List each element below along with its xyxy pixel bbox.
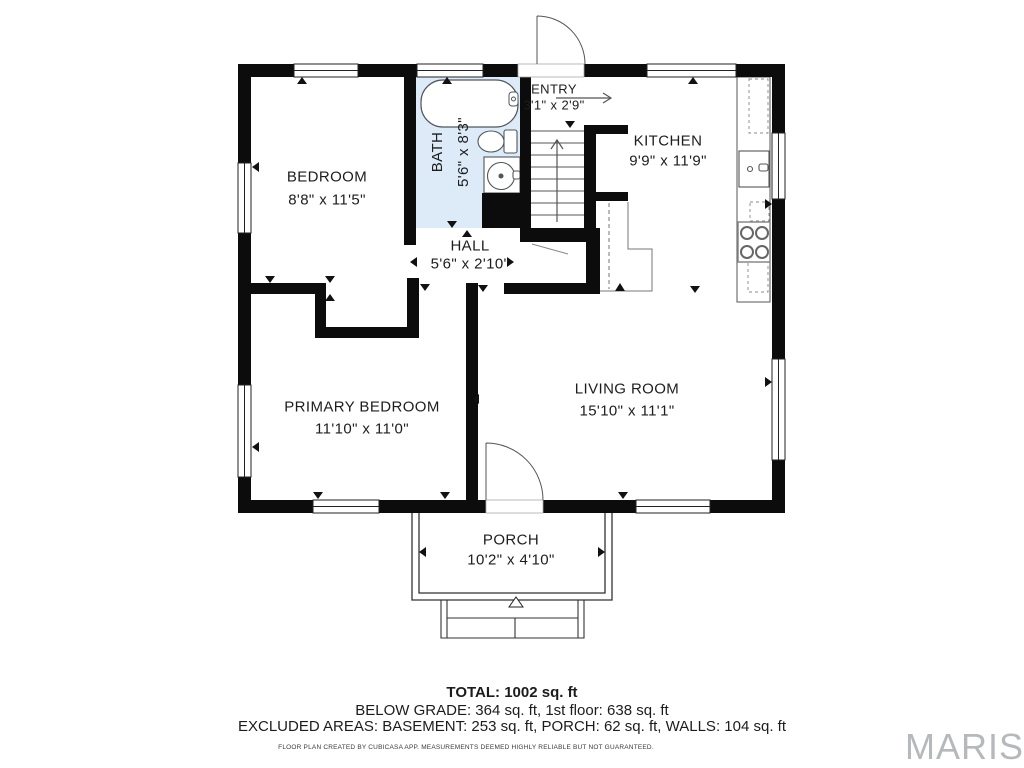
window-left-upper [238, 163, 251, 233]
open-below-outline [593, 202, 652, 291]
room-dims-living-room: 15'10" x 11'1" [579, 403, 674, 420]
room-label-bath: BATH [425, 117, 451, 187]
floor-plan-page: BEDROOM 8'8" x 11'5" BATH 5'6" x 8'3" EN… [0, 0, 1024, 768]
window-top-bedroom [294, 64, 358, 77]
room-dims-kitchen: 9'9" x 11'9" [629, 153, 707, 170]
under-stair-closet-line [532, 244, 568, 254]
disclaimer-text: FLOOR PLAN CREATED BY CUBICASA APP. MEAS… [278, 744, 654, 751]
summary-total: TOTAL: 1002 sq. ft [0, 684, 1024, 701]
window-left-lower [238, 385, 251, 477]
window-top-kitchen [647, 64, 736, 77]
window-bottom-living [636, 500, 710, 513]
front-door-opening [486, 500, 543, 513]
room-dims-hall: 5'6" x 2'10" [431, 256, 510, 273]
window-right-kitchen [772, 133, 785, 199]
floor-plan-drawing [0, 0, 1024, 768]
room-label-kitchen: KITCHEN [634, 133, 703, 150]
stairs-up-arrow [551, 140, 563, 222]
porch-entry-marker [509, 597, 523, 607]
room-label-living-room: LIVING ROOM [575, 381, 679, 398]
room-dims-bedroom: 8'8" x 11'5" [288, 192, 366, 209]
window-top-bath [417, 64, 483, 77]
room-label-entry: ENTRY [531, 82, 577, 97]
room-label-hall: HALL [450, 238, 489, 255]
room-dims-porch: 10'2" x 4'10" [467, 552, 554, 569]
room-dims-bath: 5'6" x 8'3" [451, 117, 477, 187]
room-dims-primary-bedroom: 11'10" x 11'0" [315, 421, 409, 438]
toilet-icon [478, 130, 517, 153]
window-right-living [772, 359, 785, 460]
maris-watermark: MARIS [905, 726, 1024, 768]
kitchen-sink-icon [739, 151, 769, 187]
room-label-porch: PORCH [483, 532, 539, 549]
summary-below-grade: BELOW GRADE: 364 sq. ft, 1st floor: 638 … [0, 702, 1024, 719]
kitchen-counter [737, 77, 770, 302]
bath-sink-icon [484, 157, 520, 193]
entry-door-opening [518, 64, 584, 77]
room-label-bath-group: BATH 5'6" x 8'3" [425, 117, 477, 187]
front-door-swing [486, 443, 543, 500]
summary-excluded-areas: EXCLUDED AREAS: BASEMENT: 253 sq. ft, PO… [0, 718, 1024, 735]
entry-door-swing [537, 16, 585, 64]
room-label-bedroom: BEDROOM [287, 169, 367, 186]
room-label-primary-bedroom: PRIMARY BEDROOM [284, 399, 439, 416]
window-bottom-primary [313, 500, 379, 513]
stove-icon [738, 222, 770, 262]
room-dims-entry: 3'1" x 2'9" [523, 98, 584, 113]
